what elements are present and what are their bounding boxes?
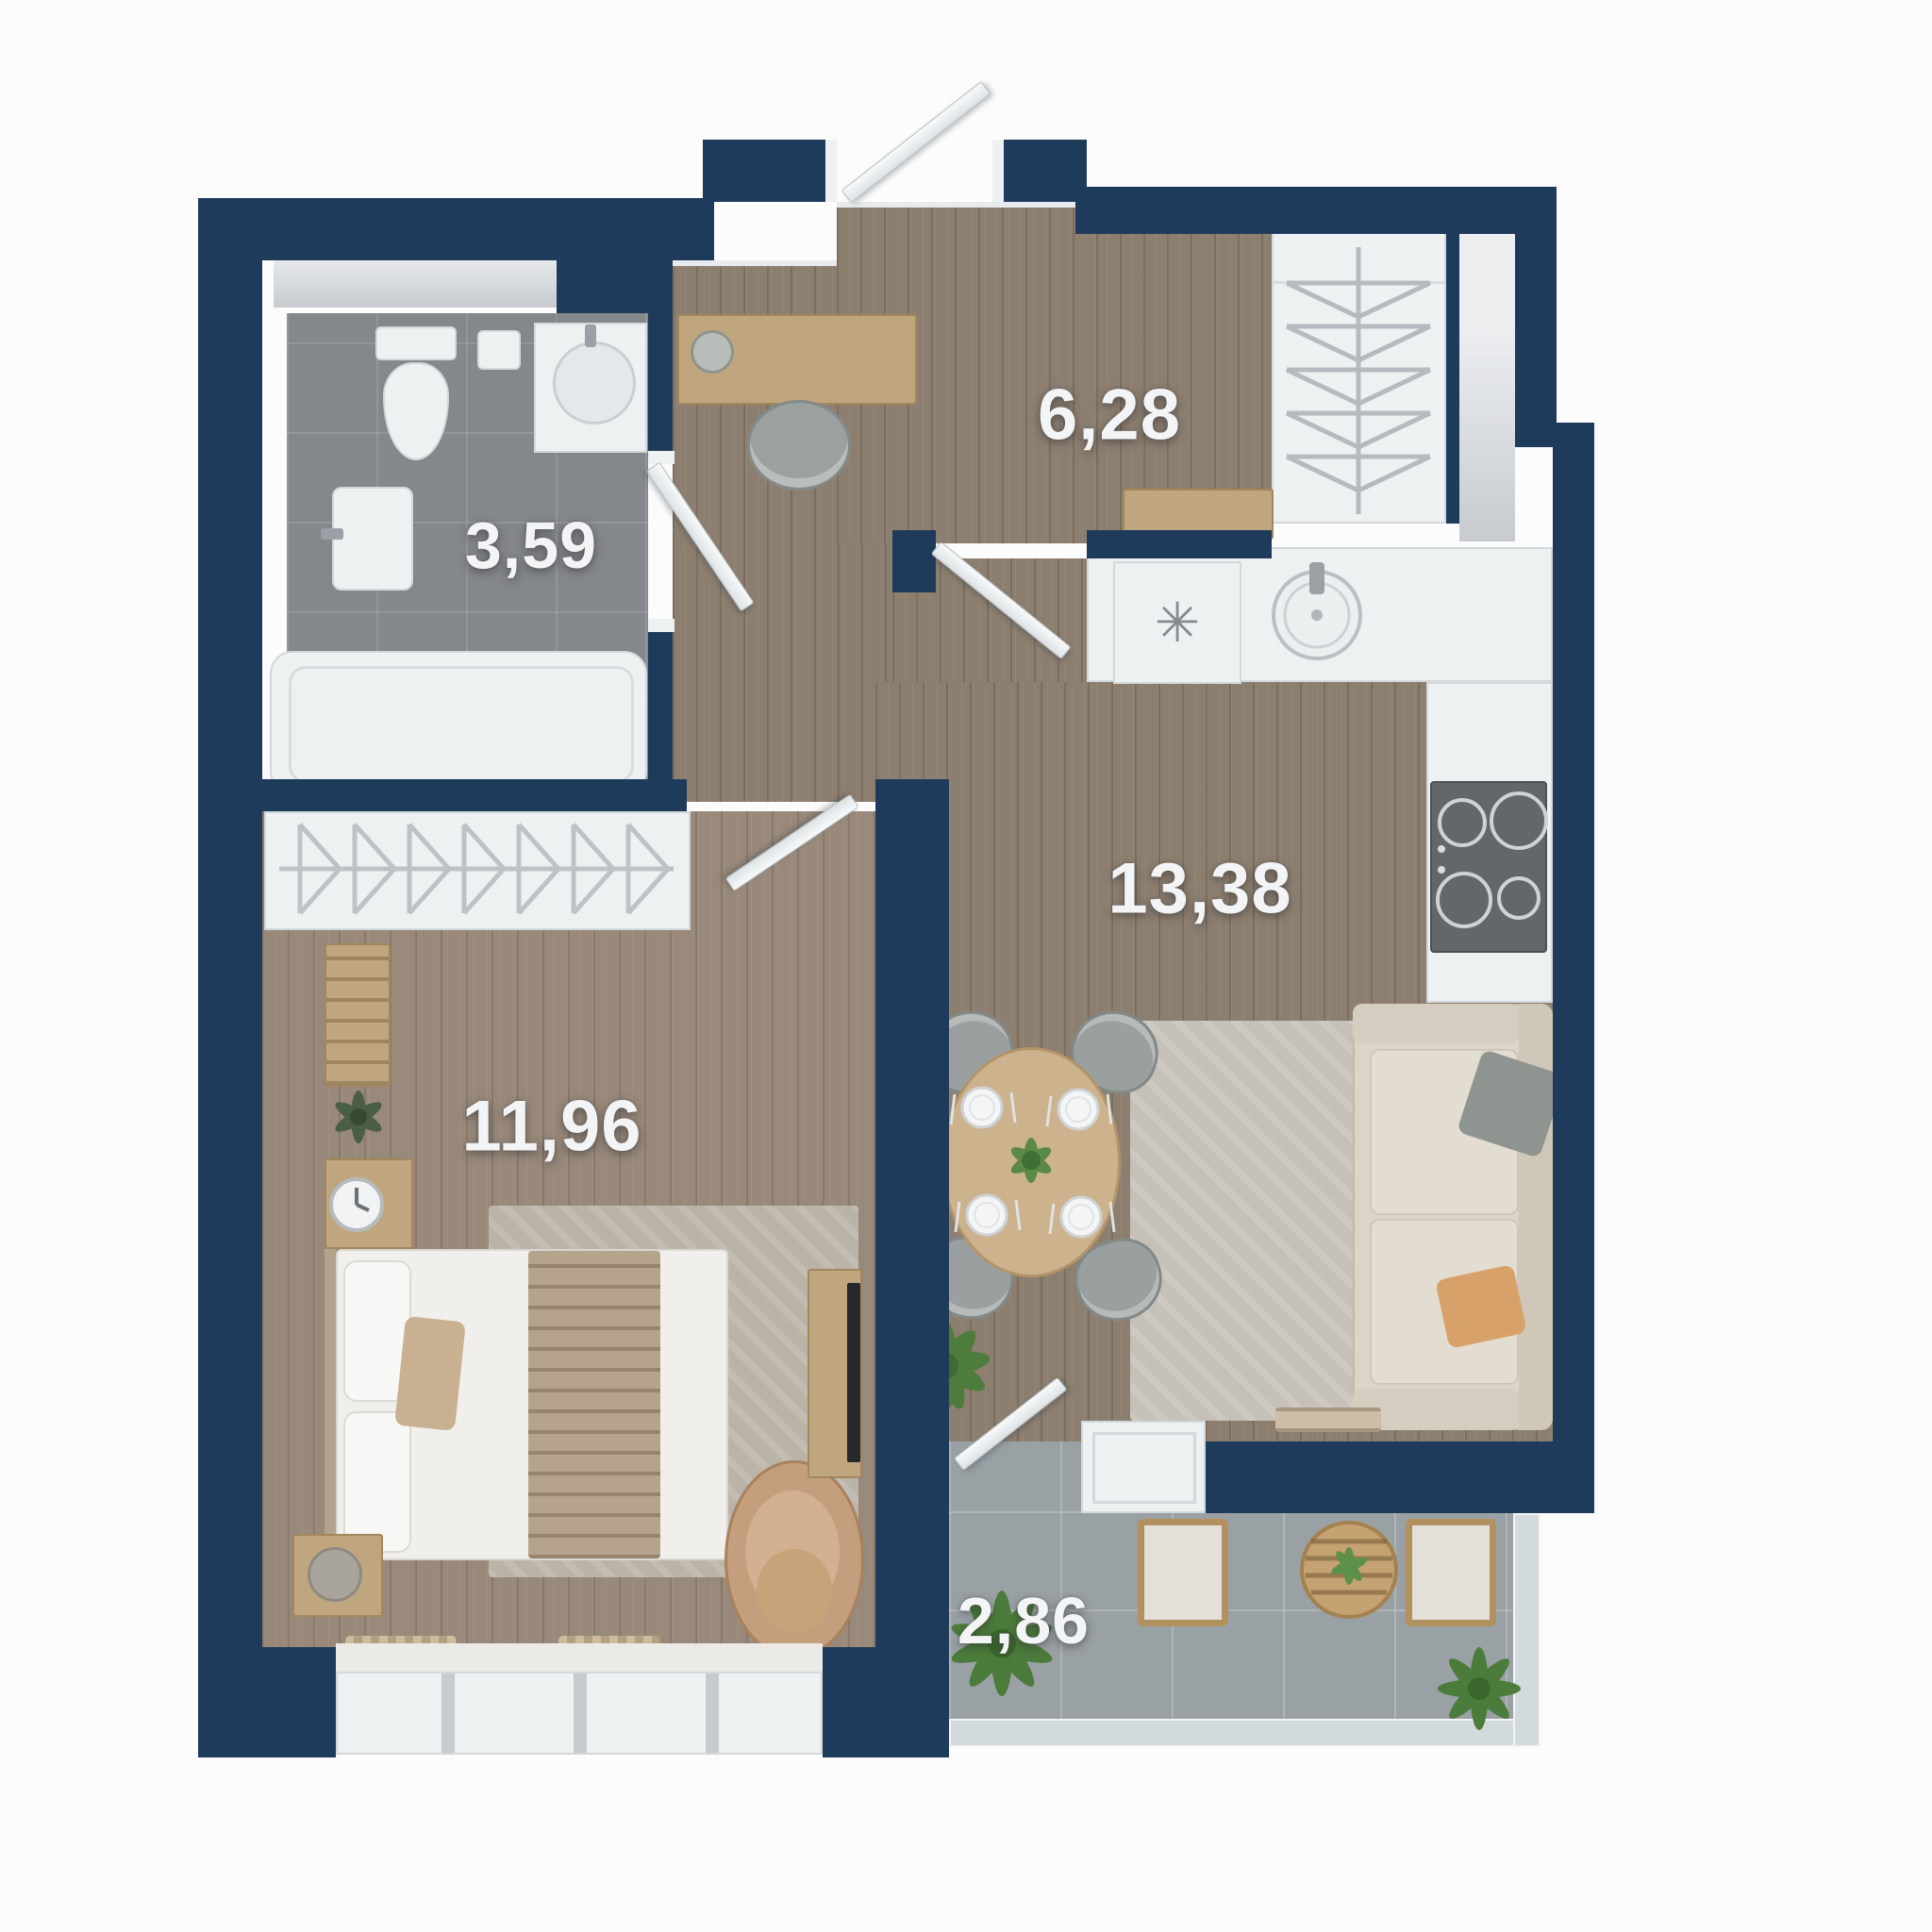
wall-bathroom-right-lower [648, 625, 673, 811]
hallway-area-label: 6,28 [1038, 375, 1181, 457]
wall-living-balcony [1206, 1441, 1594, 1513]
wall-kitchen-door-stub [892, 530, 936, 592]
kitchen-sink-icon [1274, 562, 1360, 658]
bedroom-area-label: 11,96 [462, 1086, 642, 1168]
wall-right-upper [1515, 187, 1557, 441]
wall-top-left [198, 198, 712, 260]
balcony-area-label: 2,86 [958, 1583, 1090, 1658]
bathroom-door-jamb [648, 619, 675, 632]
shelf-plant-icon [332, 1091, 385, 1143]
wall-entrance-left [703, 140, 837, 202]
clock-icon [331, 1179, 382, 1230]
wall-bathroom-top [557, 260, 673, 313]
wall-bathroom-bottom [262, 792, 673, 811]
wall-bottom-left-block [262, 1647, 336, 1757]
floor-plan: ✳ [0, 0, 1932, 1932]
hall-wardrobe-hangers-icon [1287, 247, 1430, 514]
centerpiece-plant-icon [1008, 1138, 1055, 1183]
wall-top-right-run [1075, 187, 1557, 234]
kitchen-living-area-label: 13,38 [1108, 848, 1291, 930]
bathroom-area-label: 3,59 [465, 508, 597, 583]
balcony-corner-plant-icon [1438, 1647, 1521, 1730]
bathroom-door-jamb [648, 451, 675, 464]
wall-kitchen-partition [1087, 530, 1272, 558]
wall-bottom-right-block [823, 1647, 875, 1757]
wall-left [198, 198, 262, 1757]
wall-bedroom-living [875, 779, 949, 1757]
stove-burners-icon [1438, 793, 1546, 926]
entrance-jamb [825, 140, 837, 202]
wall-entrance-right [992, 140, 1087, 202]
entrance-jamb [992, 140, 1004, 202]
bedroom-wardrobe-hangers-icon [279, 824, 674, 913]
wall-wardrobe-divider [1446, 231, 1459, 524]
wall-bathroom-right-upper [648, 311, 673, 464]
wall-right [1553, 423, 1594, 1443]
balcony-table-icon [1302, 1523, 1396, 1617]
